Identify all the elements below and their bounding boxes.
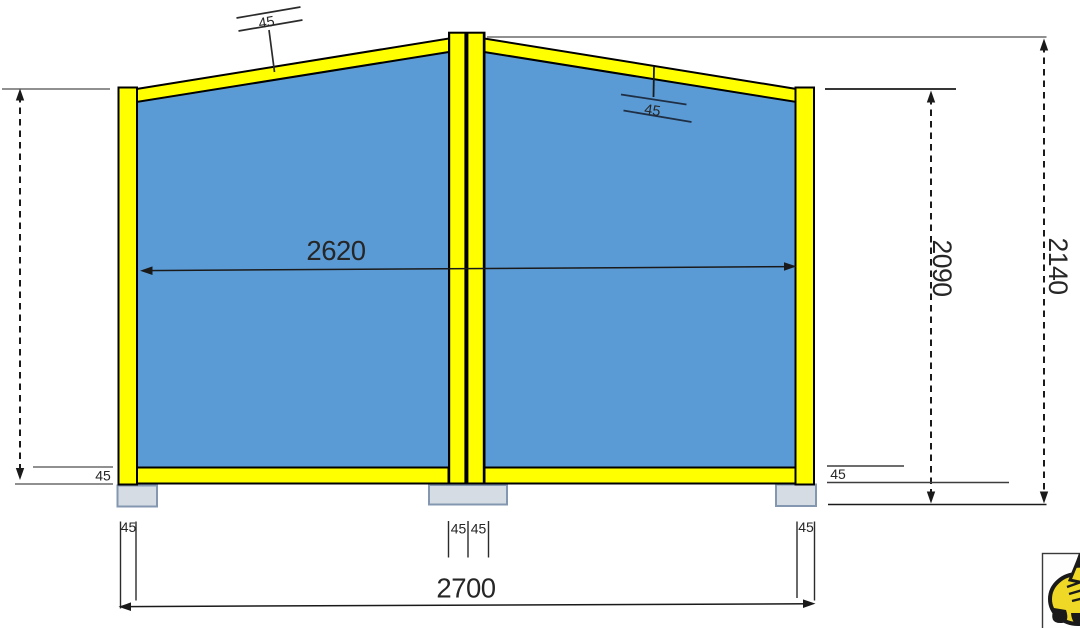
svg-text:45: 45 bbox=[257, 14, 276, 32]
svg-text:45: 45 bbox=[95, 468, 111, 484]
svg-text:2140: 2140 bbox=[1043, 238, 1073, 295]
svg-text:45: 45 bbox=[451, 521, 467, 537]
svg-text:2090: 2090 bbox=[927, 240, 957, 297]
svg-text:45: 45 bbox=[471, 521, 487, 537]
svg-text:45: 45 bbox=[798, 519, 814, 535]
svg-text:45: 45 bbox=[830, 466, 846, 482]
svg-text:2620: 2620 bbox=[306, 235, 365, 266]
svg-text:45: 45 bbox=[121, 519, 137, 535]
svg-text:45: 45 bbox=[643, 102, 661, 120]
svg-text:2700: 2700 bbox=[436, 573, 495, 604]
